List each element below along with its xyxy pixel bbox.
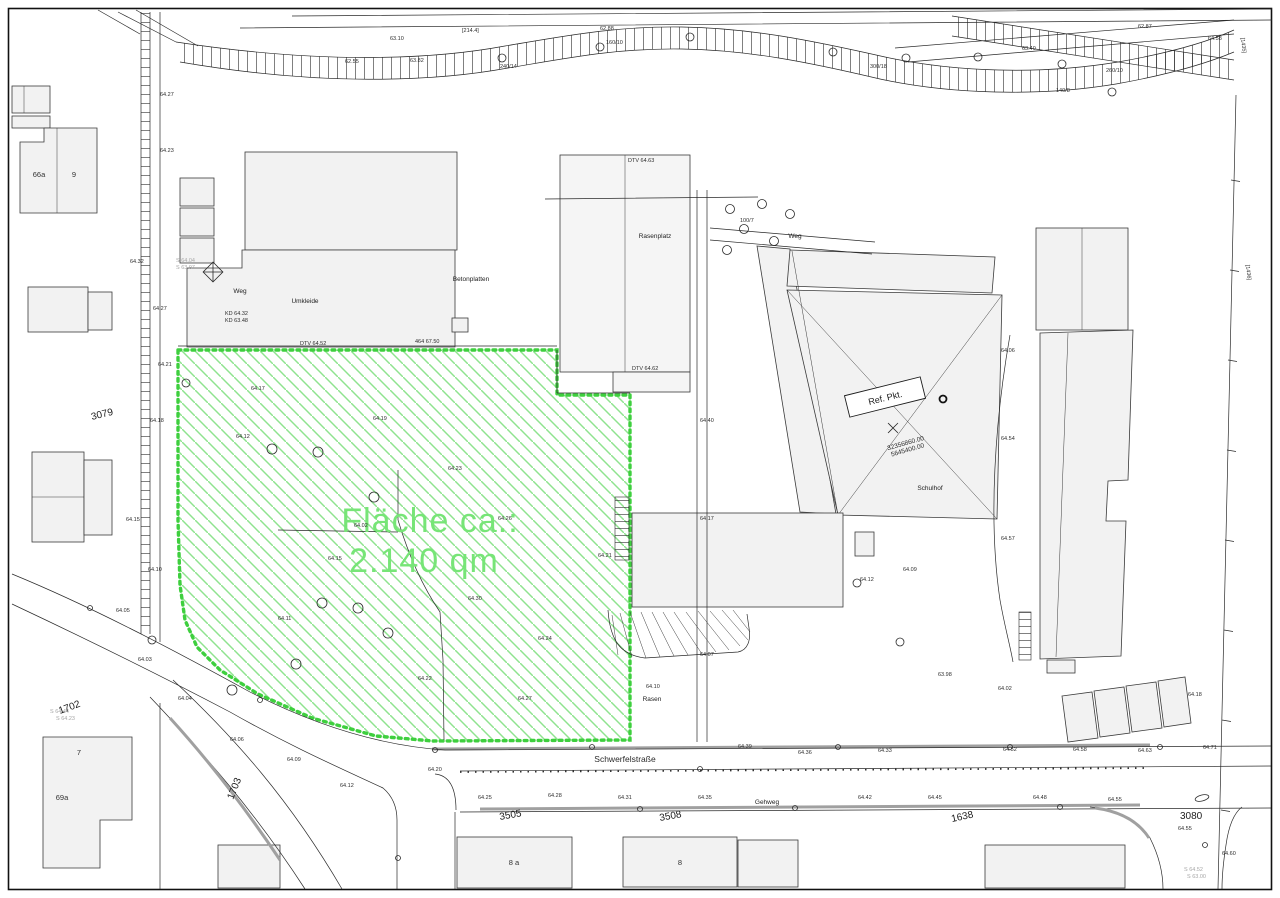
building-row [1094,687,1130,737]
spot-elevation-label: 64.17 [251,386,265,392]
spot-elevation-label: 64.26 [498,516,512,522]
spot-elevation-label: S 63.97 [176,265,195,271]
house-number-label: 66a [33,170,46,179]
building [985,845,1125,888]
building-annex [452,318,468,332]
building [88,292,112,330]
spot-elevation-label: 64.10 [148,567,162,573]
spot-elevation-label: 64.42 [858,795,872,801]
spot-elevation-label: 100/7 [740,218,754,224]
spot-elevation-label: S 64.23 [56,716,75,722]
parcel-number-label: 3080 [1180,811,1203,822]
spot-elevation-label: 140/8 [1056,88,1070,94]
building [28,287,88,332]
spot-elevation-label: 64.55 [1108,797,1122,803]
spot-elevation-label: 64.25 [478,795,492,801]
spot-elevation-label: 64.58 [1073,747,1087,753]
spot-elevation-label: 64.04 [178,696,192,702]
house-number-label: 7 [77,748,81,757]
house-number-label: 8 a [509,858,520,867]
spot-elevation-label: 464 67.50 [415,339,439,345]
stairs [1019,612,1031,660]
building [12,86,50,113]
spot-elevation-label: 64.55 [1178,826,1192,832]
spot-elevation-label: 64.33 [878,748,892,754]
spot-elevation-label: 64.21 [158,362,172,368]
area-size-label-line1: Fläche ca.: [341,502,518,540]
spot-elevation-label: DTV 64.63 [628,158,654,164]
spot-elevation-label: 64.57 [1001,536,1015,542]
spot-elevation-label: 64.20 [428,767,442,773]
spot-elevation-label: 64.22 [418,676,432,682]
spot-elevation-label: 64.11 [278,616,291,622]
spot-elevation-label: 64.23 [160,148,174,154]
building [218,845,280,888]
spot-elevation-label: [214.4] [462,28,479,34]
site-plan-page: Ref. Pkt. 32356860.00 5645400.00 Fläche … [0,0,1280,898]
building-garage [180,178,214,206]
spot-elevation-label: KD 63.48 [225,318,248,324]
spot-elevation-label: 64.58 [1208,36,1222,42]
spot-elevation-label: 64.36 [798,750,812,756]
spot-elevation-label: 62.55 [345,59,359,65]
feature-label: Schulhof [917,485,942,492]
spot-elevation-label: 64.12 [236,434,250,440]
building-annex [1047,660,1075,673]
building [245,152,457,250]
spot-elevation-label: 64.45 [928,795,942,801]
spot-elevation-label: S 64.04 [176,258,195,264]
spot-elevation-label: 64.18 [1188,692,1202,698]
building-row [1062,692,1098,742]
building-row [1126,682,1162,732]
spot-elevation-label: 240/14 [500,64,517,70]
feature-label: Betonplatten [453,276,490,283]
spot-elevation-label: S 63.00 [1187,874,1206,880]
house-number-label: 69a [56,793,69,802]
building [84,460,112,535]
spot-elevation-label: 63.98 [938,672,952,678]
spot-elevation-label: 64.03 [138,657,152,663]
spot-elevation-label: 64.10 [646,684,660,690]
feature-label: Rasenplatz [639,233,672,240]
spot-elevation-label: 64.54 [1001,436,1015,442]
spot-elevation-label: 64.27 [160,92,174,98]
spot-elevation-label: DTV 64.52 [300,341,326,347]
spot-elevation-label: 64.35 [698,795,712,801]
spot-elevation-label: 63.10 [390,36,404,42]
spot-elevation-label: 62.87 [1138,24,1152,30]
spot-elevation-label: 64.02 [998,686,1012,692]
spot-elevation-label: 64.09 [903,567,917,573]
site-plan-map[interactable]: Ref. Pkt. 32356860.00 5645400.00 Fläche … [0,0,1280,898]
spot-elevation-label: 64.12 [340,783,354,789]
spot-elevation-label: 64.30 [468,596,482,602]
building-angled [787,250,995,293]
spot-elevation-label: 64.06 [230,737,244,743]
building-garage [180,208,214,236]
spot-elevation-label: 64.52 [1003,747,1017,753]
spot-elevation-label: 64.12 [860,577,874,583]
spot-elevation-label: 64.60 [1222,851,1236,857]
spot-elevation-label: 64.05 [116,608,130,614]
spot-elevation-label: 160/10 [606,40,623,46]
feature-label: Weg [788,233,802,240]
spot-elevation-label: 64.32 [130,259,144,265]
building-shed [855,532,874,556]
spot-elevation-label: 64.27 [153,306,167,312]
feature-label: Gehweg [755,799,780,806]
spot-elevation-label: 63.40 [1022,46,1036,52]
spot-elevation-label: 64.39 [738,744,752,750]
building [12,116,50,128]
spot-elevation-label: 64.15 [126,517,140,523]
house-number-label: 8 [678,858,682,867]
building [632,513,843,607]
spot-elevation-label: 64.19 [373,416,387,422]
spot-elevation-label: 64.63 [1138,748,1152,754]
spot-elevation-label: 64.15 [328,556,342,562]
fence-ladder [141,12,150,634]
spot-elevation-label: 64.24 [538,636,552,642]
building [738,840,798,887]
area-size-label-line2: 2.140 qm [349,542,499,580]
house-number-label: 9 [72,170,76,179]
spot-elevation-label: 64.21 [598,553,612,559]
spot-elevation-label: DTV 64.62 [632,366,658,372]
spot-elevation-label: 63.82 [410,58,424,64]
spot-elevation-label: 64.17 [700,516,714,522]
spot-elevation-label: 64.23 [448,466,462,472]
spot-elevation-label: 64.40 [700,418,714,424]
spot-elevation-label: KD 64.32 [225,311,248,317]
sports-field-extension [613,372,690,392]
spot-elevation-label: 64.09 [287,757,301,763]
spot-elevation-label: 300/18 [870,64,887,70]
spot-elevation-label: 64.06 [1001,348,1015,354]
spot-elevation-label: 64.48 [1033,795,1047,801]
stairs [615,497,629,560]
spot-elevation-label: 64.07 [700,652,714,658]
spot-elevation-label: 64.31 [618,795,632,801]
spot-elevation-label: S 64.52 [1184,867,1203,873]
feature-label: Rasen [643,696,662,703]
spot-elevation-label: 64.71 [1203,745,1217,751]
spot-elevation-label: 62.88 [600,26,614,32]
spot-elevation-label: 64.27 [518,696,532,702]
building-row [1158,677,1191,727]
spot-elevation-label: 260/10 [1106,68,1123,74]
spot-elevation-label: 64.02 [354,523,368,529]
feature-label: Umkleide [291,298,318,305]
feature-label: Weg [233,288,247,295]
spot-elevation-label: 64.18 [150,418,164,424]
street-name-label: Schwerfelstraße [594,754,656,764]
spot-elevation-label: 64.28 [548,793,562,799]
